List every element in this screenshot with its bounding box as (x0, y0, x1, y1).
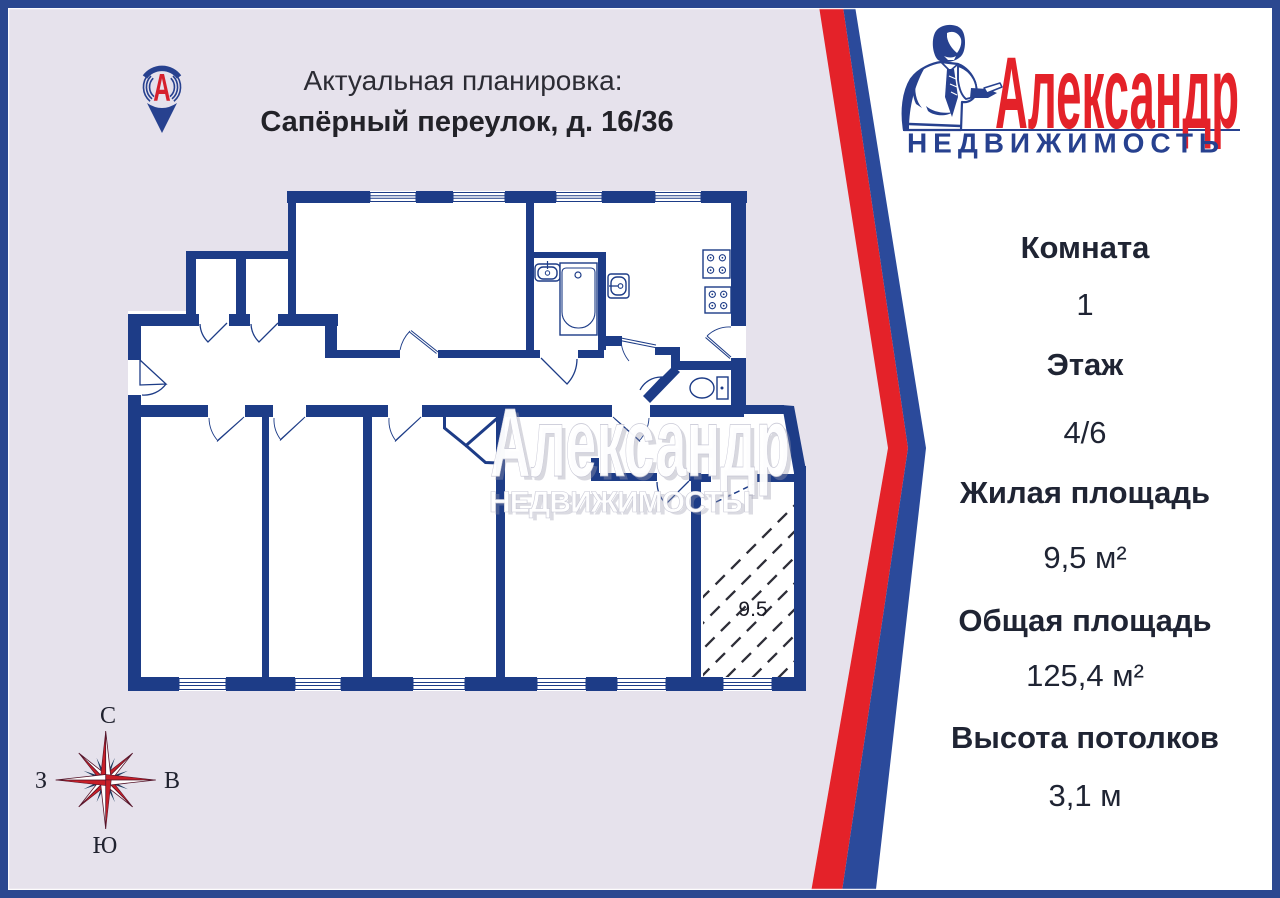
svg-text:4/6: 4/6 (1063, 415, 1106, 450)
svg-text:Сапёрный переулок, д. 16/36: Сапёрный переулок, д. 16/36 (260, 106, 673, 138)
svg-text:З: З (35, 768, 47, 794)
svg-text:125,4 м²: 125,4 м² (1026, 658, 1144, 693)
svg-text:9,5 м²: 9,5 м² (1043, 540, 1126, 575)
svg-text:9.5: 9.5 (738, 598, 767, 621)
svg-text:С: С (100, 703, 116, 729)
svg-text:Этаж: Этаж (1047, 347, 1124, 382)
svg-text:Ю: Ю (93, 833, 118, 859)
svg-text:Комната: Комната (1021, 230, 1151, 265)
svg-text:1: 1 (1076, 287, 1093, 322)
svg-text:Александр: Александр (490, 388, 790, 497)
svg-text:Актуальная планировка:: Актуальная планировка: (304, 65, 623, 96)
svg-text:3,1 м: 3,1 м (1048, 778, 1121, 813)
svg-text:Общая площадь: Общая площадь (958, 603, 1211, 638)
svg-text:В: В (164, 768, 180, 794)
svg-text:Жилая площадь: Жилая площадь (959, 475, 1210, 510)
svg-text:НЕДВИЖИМОСТЫ: НЕДВИЖИМОСТЫ (489, 486, 751, 519)
svg-text:Высота потолков: Высота потолков (951, 720, 1219, 755)
svg-text:А: А (153, 66, 170, 109)
